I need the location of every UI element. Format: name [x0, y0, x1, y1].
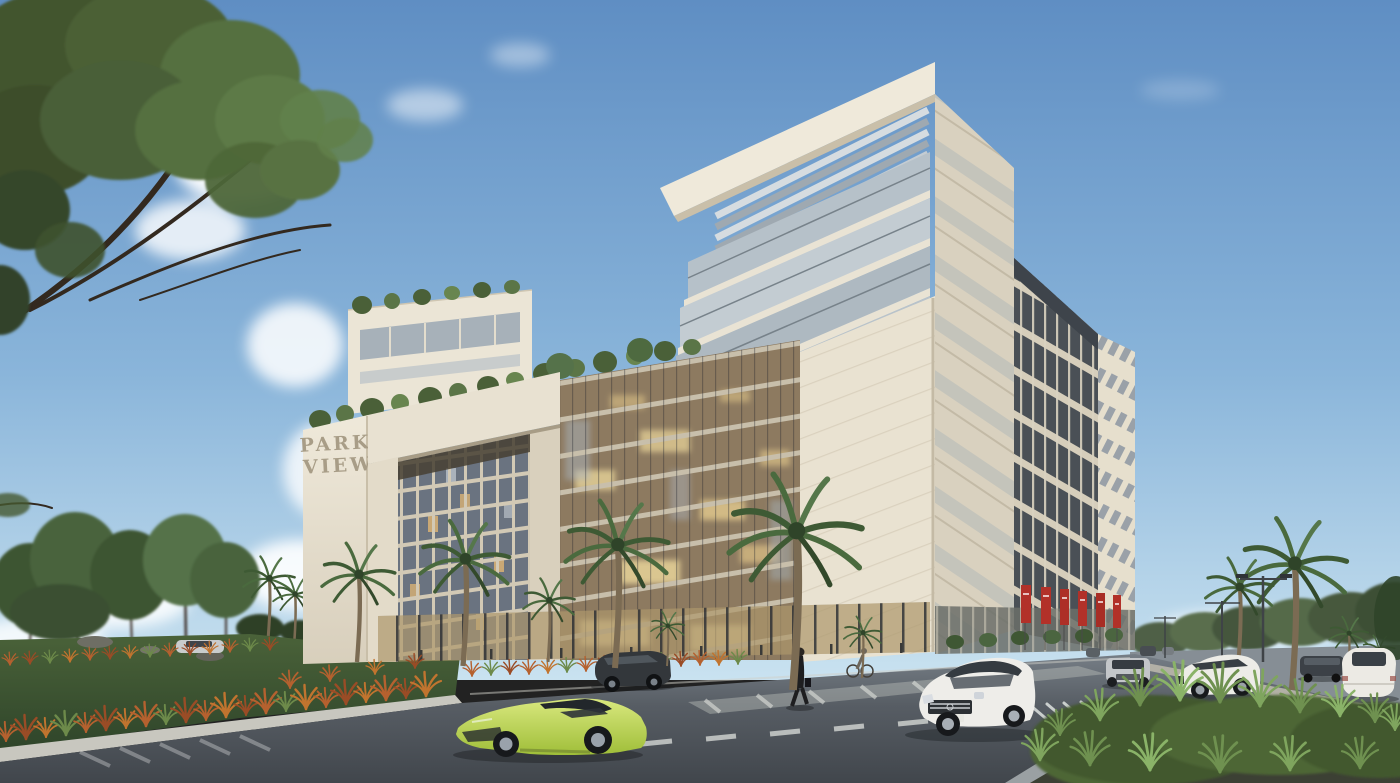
podium-left-wall: PARK VIEW: [299, 415, 375, 664]
sign-line-2: VIEW: [301, 453, 375, 479]
rendering-canvas: PARK VIEW: [0, 0, 1400, 783]
park-view-sign: PARK VIEW: [299, 431, 375, 479]
dark-distant-suv: [1298, 656, 1346, 683]
silver-compact-suv: [1102, 658, 1154, 690]
tower-side-facade: [935, 94, 1014, 654]
scene-svg: PARK VIEW: [0, 0, 1400, 783]
parked-dark-suv: [591, 651, 675, 692]
